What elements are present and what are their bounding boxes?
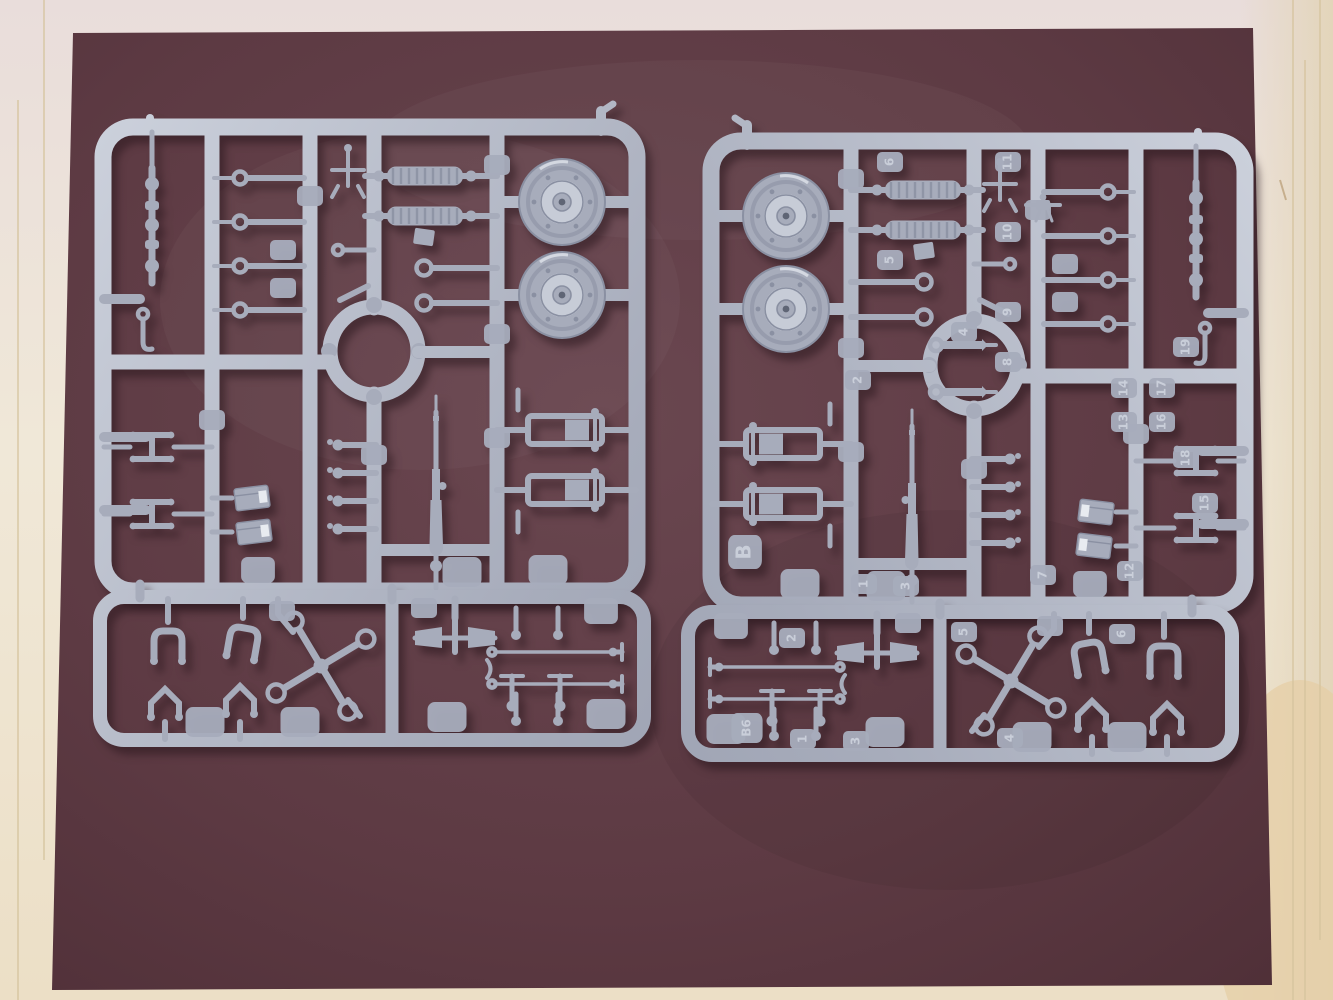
svg-text:2: 2 (851, 376, 865, 384)
svg-text:2: 2 (785, 634, 799, 642)
svg-text:3: 3 (849, 737, 863, 745)
svg-text:B: B (732, 544, 756, 559)
sprue-photo-svg: 6 5 11 10 9 4 8 2 B 1 3 7 12 13 14 17 16… (0, 0, 1333, 1000)
svg-text:6: 6 (883, 158, 897, 166)
svg-text:16: 16 (1155, 414, 1169, 431)
svg-text:5: 5 (957, 628, 971, 636)
svg-text:1: 1 (857, 580, 871, 588)
svg-text:4: 4 (957, 328, 971, 336)
svg-text:6: 6 (1115, 630, 1129, 638)
svg-text:9: 9 (1001, 308, 1015, 316)
photo-model-kit-sprues: 6 5 11 10 9 4 8 2 B 1 3 7 12 13 14 17 16… (0, 0, 1333, 1000)
svg-text:10: 10 (1001, 224, 1015, 241)
svg-text:7: 7 (1036, 571, 1050, 579)
svg-text:B6: B6 (740, 719, 754, 737)
svg-text:3: 3 (899, 582, 913, 590)
svg-text:1: 1 (796, 735, 810, 743)
svg-text:5: 5 (883, 256, 897, 264)
svg-text:18: 18 (1179, 450, 1193, 467)
svg-text:15: 15 (1198, 495, 1212, 512)
svg-text:19: 19 (1179, 339, 1193, 356)
svg-text:8: 8 (1001, 358, 1015, 366)
svg-text:14: 14 (1117, 380, 1131, 397)
svg-text:12: 12 (1123, 563, 1137, 580)
svg-text:4: 4 (1003, 734, 1017, 742)
svg-text:11: 11 (1001, 154, 1015, 171)
svg-text:17: 17 (1155, 380, 1169, 397)
svg-text:13: 13 (1117, 414, 1131, 431)
